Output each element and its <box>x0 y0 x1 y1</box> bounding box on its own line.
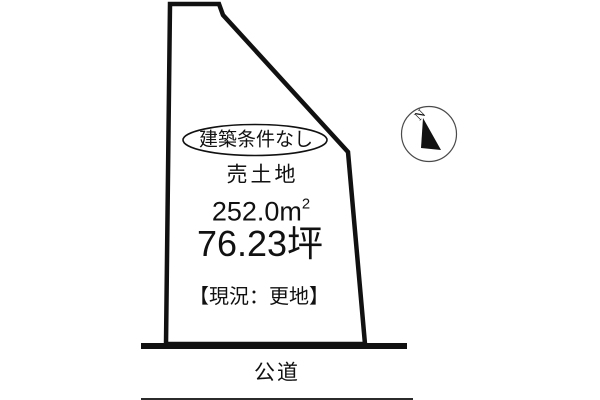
area-sqm-value: 252.0 <box>212 197 280 227</box>
area-sqm-label: 252.0m2 <box>212 199 310 226</box>
land-plot-diagram: N 建築条件なし 売土地 252.0m2 76.23坪 【現況：更地】 公道 <box>0 0 600 400</box>
current-status-label: 【現況：更地】 <box>189 287 329 307</box>
badge-label: 建築条件なし <box>199 131 313 150</box>
area-tsubo-label: 76.23坪 <box>197 226 323 262</box>
area-sqm-superscript: 2 <box>302 196 310 212</box>
north-compass-icon: N <box>402 106 457 162</box>
sale-type-label: 売土地 <box>224 165 299 186</box>
area-sqm-unit: m <box>279 197 302 227</box>
public-road-label: 公道 <box>252 363 300 384</box>
